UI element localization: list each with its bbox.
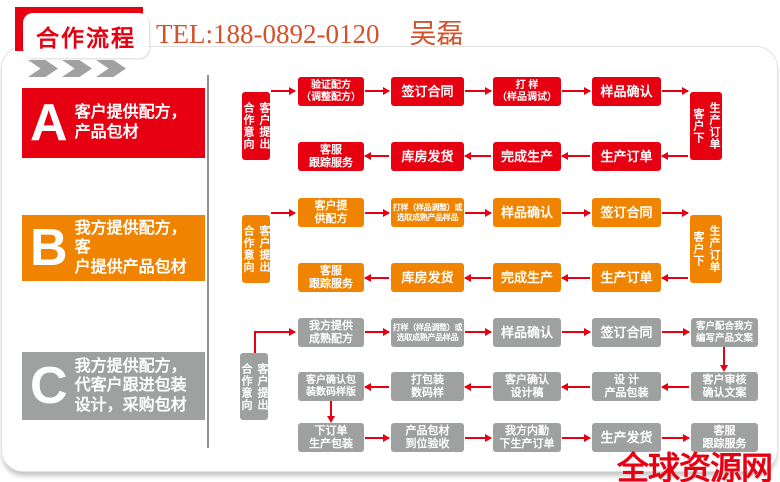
vertical-divider [207,75,209,448]
flow-a-step: 生产订单 [592,142,661,171]
flow-c-start-box: 合作意向 客户提出 [240,353,268,420]
phone-number: TEL:188-0892-0120 [156,19,379,49]
flow-a-step: 验证配方 （调整配方） [298,77,364,106]
flow-arrow [562,212,590,214]
flow-arrow [662,212,688,214]
flow-b-step: 签订合同 [592,198,661,227]
flow-a-step: 完成生产 [493,142,561,171]
flow-a-step: 打 样 （样品调试） [493,77,561,106]
contact-line: TEL:188-0892-0120吴磊 [156,12,463,51]
flow-b-step: 生产订单 [592,263,661,292]
section-b-description: 我方提供配方，客 户提供产品包材 [75,219,197,278]
flowchart-page: 合作流程 TEL:188-0892-0120吴磊 A 客户提供配方， 产品包材 … [0,0,780,482]
flow-c-step: 打样（样品调整）或 选取成熟产品样品 [391,318,464,347]
vertical-text: 客户下 [690,108,706,144]
section-b-label: B 我方提供配方，客 户提供产品包材 [22,215,205,281]
flow-b-end-box: 客户下 生产订单 [690,215,722,283]
flow-a-step: 库房发货 [391,142,464,171]
flow-arrow [365,212,389,214]
section-c-letter: C [30,360,68,412]
flow-arrow [365,437,389,439]
vertical-text: 合作意向 [240,102,256,150]
flow-c-step: 客户审核 确认文案 [691,372,758,401]
flow-b-step: 样品确认 [493,198,561,227]
flow-arrow [562,155,590,157]
flow-arrow [465,155,491,157]
flow-arrow [662,90,688,92]
section-a-label: A 客户提供配方， 产品包材 [22,88,205,158]
flow-arrow [254,331,295,333]
flow-c-step: 客户配合我方 编写产品文案 [691,318,758,347]
flow-b-step: 库房发货 [391,263,464,292]
flow-arrow [465,437,491,439]
flow-b-step: 客户提 供配方 [298,198,364,227]
flow-arrow [365,386,389,388]
flow-c-step: 客户确认 设计稿 [493,372,561,401]
flow-arrow-down [330,401,332,418]
flow-arrow [562,90,590,92]
flow-arrow-down [723,347,725,367]
vertical-text: 生产订单 [706,225,722,273]
vertical-text: 客户提出 [254,363,270,411]
flow-connector [254,332,256,353]
contact-name: 吴磊 [409,19,463,49]
flow-arrow [465,331,491,333]
vertical-text: 客户下 [690,231,706,267]
section-b-letter: B [30,222,68,274]
flow-arrow [465,386,491,388]
flow-a-end-box: 客户下 生产订单 [690,92,722,160]
section-a-description: 客户提供配方， 产品包材 [75,103,187,142]
flow-b-start-box: 合作意向 客户提出 [242,215,270,283]
flow-a-step: 签订合同 [391,77,464,106]
flow-c-step: 产品包材 到位验收 [391,423,464,452]
section-a-letter: A [30,97,68,149]
flow-c-step: 样品确认 [493,318,561,347]
flow-b-step: 打样（样品调整）或 选取成熟产品样品 [391,198,464,227]
flow-arrow [271,90,295,92]
flow-arrow [365,331,389,333]
flow-arrow [662,331,689,333]
flow-arrow [465,90,491,92]
flow-c-step: 打包装 数码样 [391,372,464,401]
flow-arrow [662,277,688,279]
section-c-description: 我方提供配方， 代客户跟进包装 设计，采购包材 [75,357,187,416]
flow-a-step: 客服 跟踪服务 [298,142,364,171]
header-title-tab: 合作流程 [23,13,149,58]
vertical-text: 客户提出 [256,225,272,273]
flow-a-start-box: 合作意向 客户提出 [242,92,270,160]
flow-b-step: 完成生产 [493,263,561,292]
flow-arrow [562,437,590,439]
vertical-text: 合作意向 [238,363,254,411]
vertical-text: 合作意向 [240,225,256,273]
flow-c-step: 设 计 产品包装 [592,372,661,401]
flow-arrow [465,277,491,279]
vertical-text: 客户提出 [256,102,272,150]
flow-arrow [271,212,295,214]
flow-arrow [365,277,389,279]
flow-arrow [562,277,590,279]
flow-arrow [365,155,389,157]
vertical-text: 生产订单 [706,102,722,150]
flow-c-step: 下订单 生产包装 [298,423,364,452]
flow-arrow [662,437,689,439]
flow-c-step: 我方内勤 下生产订单 [493,423,561,452]
flow-b-step: 客服 跟踪服务 [298,263,364,292]
flow-arrow [562,386,590,388]
flow-arrow [662,155,688,157]
flow-arrow [662,386,689,388]
flow-c-step: 客户确认包 装数码样版 [298,372,364,401]
flow-a-step: 样品确认 [592,77,661,106]
flow-arrow [465,212,491,214]
page-title: 合作流程 [36,19,136,53]
section-c-label: C 我方提供配方， 代客户跟进包装 设计，采购包材 [22,352,205,420]
site-watermark: 全球资源网 [617,443,772,482]
flow-c-step: 我方提供 成熟配方 [298,318,364,347]
flow-c-step: 签订合同 [592,318,661,347]
flow-arrow [365,90,389,92]
flow-arrow [562,331,590,333]
